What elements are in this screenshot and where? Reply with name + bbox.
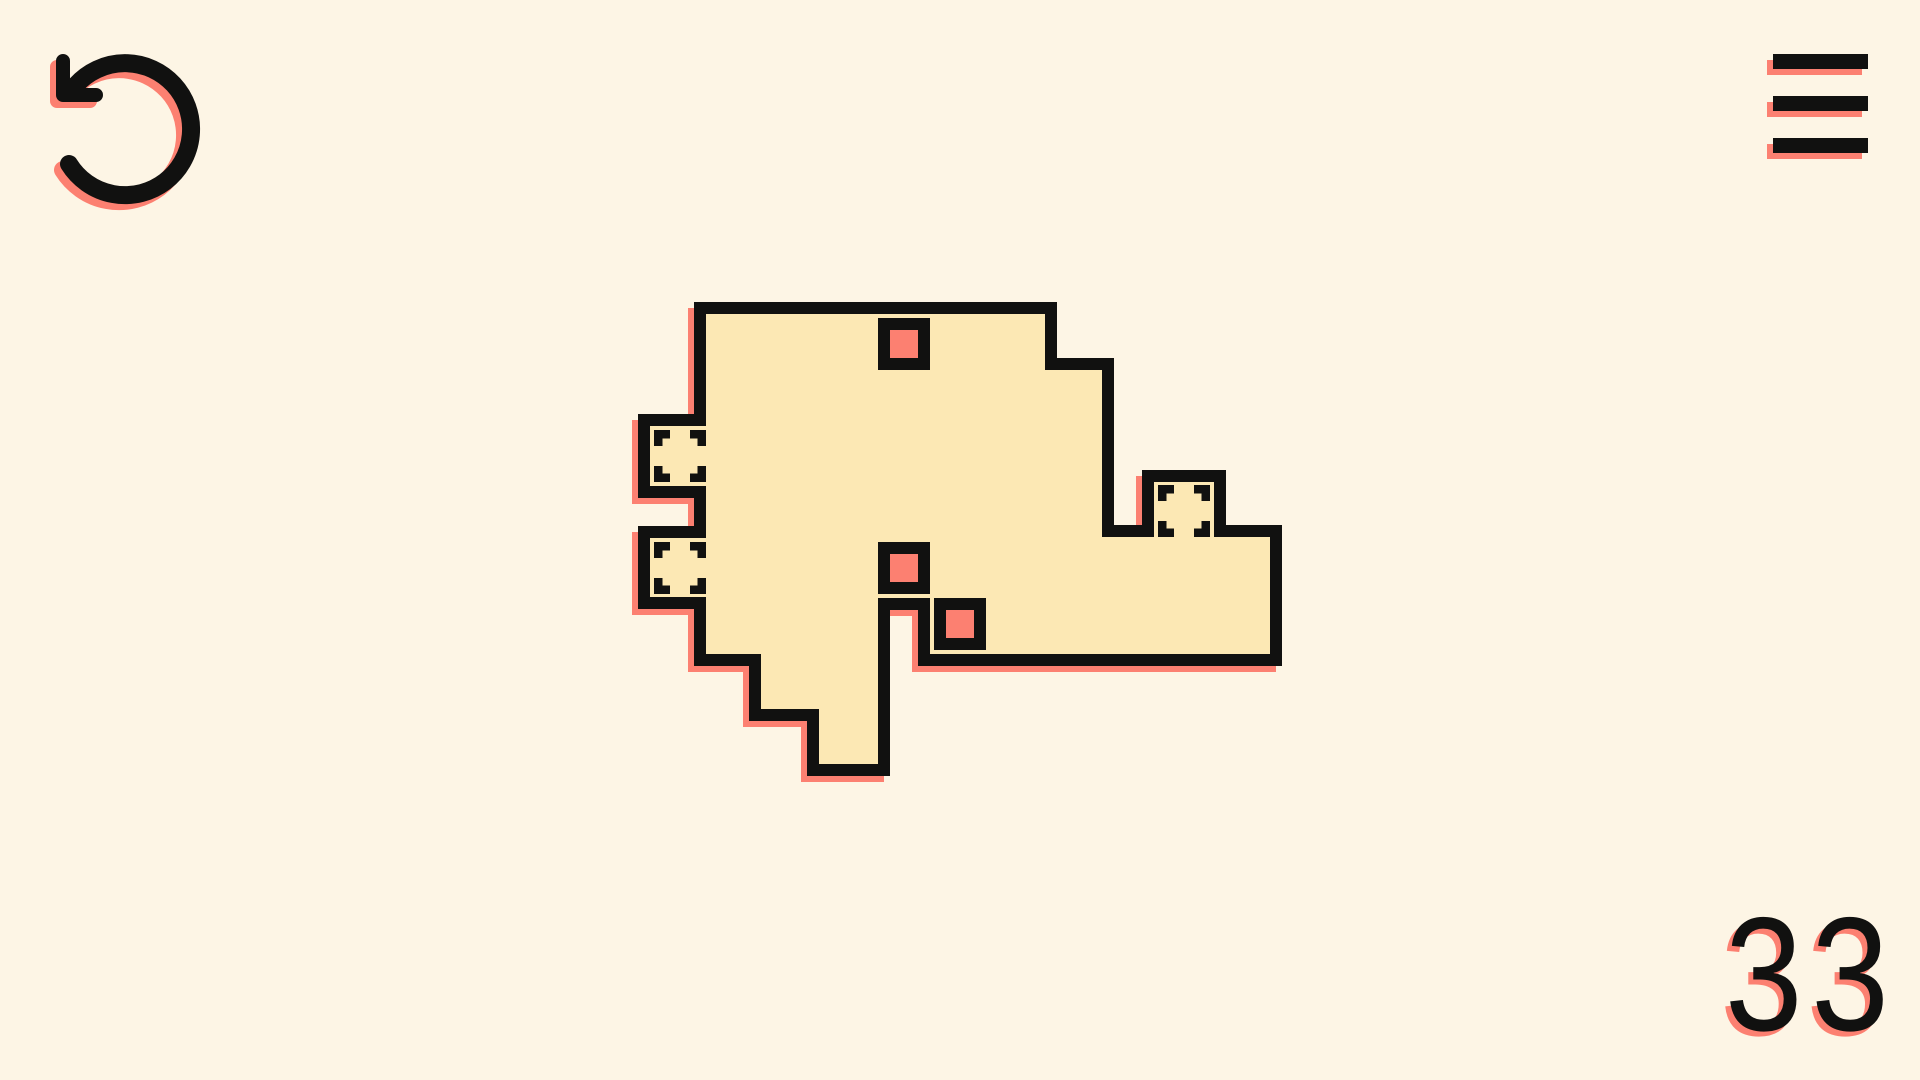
svg-text:33: 33 — [1725, 884, 1898, 1065]
